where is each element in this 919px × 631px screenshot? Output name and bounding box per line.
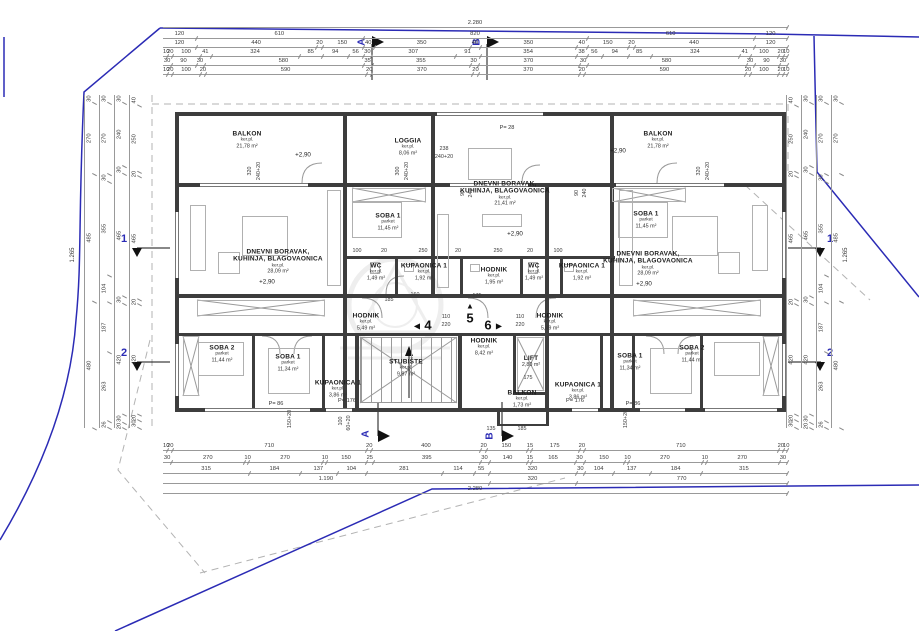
inner-dim: 110	[442, 314, 451, 320]
bed	[268, 348, 310, 394]
closet-row	[197, 300, 325, 316]
dim-value: 40	[576, 39, 587, 47]
dim-chain-left-1: 30270485480	[84, 95, 94, 428]
wardrobe	[763, 336, 779, 396]
level-marker: +2,90	[610, 148, 626, 155]
dim-value: 10	[783, 66, 787, 74]
dim-value: 580	[587, 57, 746, 65]
dim-value: 30	[85, 95, 94, 103]
dim-value: 324	[211, 48, 299, 56]
dim-value: 30	[817, 95, 826, 103]
dim-value: 350	[480, 39, 576, 47]
room-label-hodnik-right: HODNIKker.pl.5,49 m²	[537, 312, 564, 331]
inner-dim: 185	[518, 426, 527, 432]
dim-value: 140	[489, 454, 527, 462]
wall	[600, 333, 603, 412]
apartment-6-arrow: ▶	[496, 322, 502, 331]
dim-value: 137	[613, 465, 651, 473]
wall	[431, 112, 435, 298]
inner-dim: 220	[516, 322, 525, 328]
bed	[650, 348, 692, 394]
wardrobe	[612, 188, 686, 202]
kitchen-counter	[437, 214, 449, 288]
dim-value: 270	[248, 454, 321, 462]
dim-value: 270	[85, 103, 94, 174]
dim-chain-right-1: 4025020465204202030	[786, 95, 796, 428]
dim-value: 440	[196, 39, 316, 47]
kitchen-counter	[327, 190, 341, 286]
dim-value: 485	[832, 174, 841, 302]
sofa	[190, 205, 206, 271]
window	[437, 112, 543, 116]
parapet-label: P= 86	[269, 401, 284, 407]
dim-chain-bottom-1: 1020710204002015015175207102010	[163, 441, 787, 451]
window	[572, 408, 598, 412]
dim-value: 184	[249, 465, 299, 473]
wall	[513, 392, 547, 395]
dim-chain-left-2: 302703035510418726326	[99, 95, 109, 428]
dim-value: 20	[115, 423, 124, 428]
dim-value: 480	[832, 302, 841, 428]
dim-value: 90	[754, 57, 779, 65]
dim-value: 30	[817, 174, 826, 182]
inner-dim: 100	[338, 417, 344, 426]
dim-value: 26	[100, 421, 109, 428]
dim-value: 30	[100, 95, 109, 103]
inner-dim: 100	[554, 248, 563, 254]
wardrobe	[352, 188, 426, 202]
dim-value: 400	[371, 442, 480, 450]
dim-chain-right-3: 302703035510418726326	[816, 95, 826, 428]
dim-value: 240	[802, 103, 811, 166]
dim-value: 580	[204, 57, 363, 65]
dim-value: 94	[322, 48, 348, 56]
dim-value: 55	[474, 465, 489, 473]
dim-value: 150	[584, 454, 625, 462]
dim-value: 320	[489, 465, 577, 473]
inner-dim: 240+20	[435, 154, 453, 160]
dim-value: 465	[802, 174, 811, 296]
dim-value: 100	[750, 48, 777, 56]
dim-value: 120	[163, 30, 196, 38]
wall	[252, 333, 255, 412]
dim-value: 30	[163, 57, 171, 65]
parapet-label: P= 176	[566, 398, 584, 404]
dim-chain-bottom-4: 1.190320770	[163, 474, 787, 484]
dim-value: 281	[366, 465, 443, 473]
dim-value: 184	[650, 465, 700, 473]
inner-dim: 20	[381, 248, 387, 254]
inner-dim: 238	[440, 146, 449, 152]
inner-dim: 240+20	[404, 162, 410, 180]
dim-value: 30	[746, 57, 754, 65]
dim-value: 85	[628, 48, 651, 56]
dim-value: 324	[651, 48, 739, 56]
dim-value: 240	[115, 103, 124, 166]
dim-value: 350	[374, 39, 470, 47]
dim-value: 150	[322, 39, 363, 47]
dim-value: 150	[486, 442, 527, 450]
dim-value: 30	[163, 454, 171, 462]
dim-value: 590	[584, 66, 745, 74]
dim-value: 30	[363, 48, 371, 56]
sink	[470, 264, 480, 272]
dim-value: 610	[196, 30, 363, 38]
dim-value: 370	[478, 57, 579, 65]
sink	[564, 264, 574, 272]
dim-value: 485	[85, 174, 94, 302]
dim-chain-bottom-total: 2.280	[163, 484, 787, 494]
dim-value: 465	[130, 177, 139, 299]
dim-value: 41	[739, 48, 750, 56]
dim-value: 30	[470, 57, 478, 65]
dim-value: 104	[337, 465, 365, 473]
dim-value: 35	[363, 57, 373, 65]
level-marker: +2,90	[636, 281, 652, 288]
dim-value: 710	[172, 442, 366, 450]
dim-value: 30	[196, 57, 204, 65]
room-label-balkon-right: BALKONker.pl.21,78 m²	[643, 130, 672, 149]
dim-value: 465	[787, 177, 796, 299]
closet-row	[633, 300, 761, 316]
inner-dim: 20	[455, 248, 461, 254]
dim-value: 315	[163, 465, 249, 473]
dim-value: 590	[205, 66, 366, 74]
table	[218, 252, 240, 274]
wardrobe	[183, 336, 199, 396]
wall	[343, 256, 615, 259]
dim-value: 30	[480, 454, 488, 462]
dim-value: 30	[787, 420, 796, 428]
wall	[513, 333, 516, 395]
apartment-6-number: 6	[484, 318, 491, 333]
parapet-label: P= 28	[500, 125, 515, 131]
dim-chain-bottom-2: 3027010270101502539530140151653015010270…	[163, 453, 787, 463]
level-marker: +2,90	[507, 231, 523, 238]
dim-value: 104	[100, 275, 109, 302]
dim-value: 420	[115, 304, 124, 415]
window	[200, 183, 308, 187]
room-label-hodnik-small: HODNIKker.pl.1,95 m²	[481, 266, 508, 285]
dim-value: 420	[802, 304, 811, 415]
dim-value: 100	[750, 66, 777, 74]
dim-value: 307	[371, 48, 455, 56]
dim-value: 30	[130, 420, 139, 428]
dim-chain-right-4: 30270485480	[831, 95, 841, 428]
wall	[520, 256, 523, 297]
level-marker: +2,90	[295, 152, 311, 159]
dim-total-vertical-left: 1.265	[70, 247, 76, 262]
dim-value: 26	[817, 421, 826, 428]
inner-dim: 60+20	[346, 415, 352, 430]
dim-chain-top-total: 2.280	[163, 18, 787, 28]
dim-value: 320	[489, 475, 577, 483]
dim-value: 30	[115, 166, 124, 174]
inner-dim: 20	[527, 248, 533, 254]
dim-chain-bottom-3: 3151841371042811145532030104137184315	[163, 464, 787, 474]
wall	[460, 256, 463, 297]
dim-value: 465	[115, 174, 124, 296]
inner-dim: 135	[487, 426, 496, 432]
inner-dim: 90	[460, 190, 466, 196]
inner-dim: 240	[582, 189, 588, 198]
dim-value: 270	[171, 454, 244, 462]
dim-value: 94	[602, 48, 628, 56]
window	[640, 408, 685, 412]
inner-dim: 160	[411, 292, 420, 298]
dim-value: 120	[163, 39, 196, 47]
dim-value: 137	[300, 465, 338, 473]
dim-value: 270	[832, 103, 841, 174]
dim-chain-right-2: 3024030465304203020	[801, 95, 811, 428]
dim-value: 100	[172, 48, 199, 56]
dim-value: 270	[628, 454, 701, 462]
dim-value: 150	[326, 454, 367, 462]
inner-dim: 240+20	[256, 162, 262, 180]
dim-value: 355	[817, 182, 826, 275]
floor-plan: BALKONker.pl.21,78 m² LOGGIAker.pl.8,06 …	[0, 0, 919, 631]
dim-value: 30	[802, 95, 811, 103]
dim-value: 420	[130, 304, 139, 415]
dim-value: 104	[817, 275, 826, 302]
inner-dim: 175	[473, 293, 482, 299]
room-label-hodnik-center: HODNIKker.pl.8,42 m²	[471, 337, 498, 356]
bed	[714, 342, 760, 376]
sofa	[482, 214, 522, 227]
dim-value: 120	[754, 30, 787, 38]
dim-value: 41	[200, 48, 211, 56]
level-marker: +2,90	[259, 279, 275, 286]
table	[718, 252, 740, 274]
dim-value: 187	[100, 303, 109, 352]
bed	[352, 202, 402, 238]
dim-value: 20	[787, 171, 796, 176]
inner-dim: 110	[516, 314, 525, 320]
dim-value: 820	[363, 30, 587, 38]
dim-value: 263	[817, 352, 826, 421]
dim-value: 610	[587, 30, 754, 38]
dim-value: 770	[576, 475, 787, 483]
dim-value: 710	[584, 442, 778, 450]
dim-value: 91	[455, 48, 480, 56]
window	[175, 212, 179, 278]
dim-value: 30	[115, 95, 124, 103]
room-label-hodnik-left: HODNIKker.pl.5,49 m²	[353, 312, 380, 331]
dim-value: 40	[130, 95, 139, 106]
dim-value: 30	[579, 57, 587, 65]
dim-chain-top-5: 102010020590203702037020590201002010	[163, 65, 787, 75]
dim-value: 30	[779, 57, 787, 65]
dim-value: 250	[130, 106, 139, 172]
dim-value: 56	[587, 48, 602, 56]
elevator-cab	[517, 337, 544, 391]
dim-value: 56	[348, 48, 363, 56]
dim-value: 114	[442, 465, 473, 473]
dim-value: 20	[802, 423, 811, 428]
bed	[198, 342, 244, 376]
dim-chain-left-3: 3024030465304203020	[114, 95, 124, 428]
dim-value: 355	[372, 57, 469, 65]
inner-dim: 175	[524, 375, 533, 381]
wall	[700, 333, 703, 412]
dim-value: 90	[171, 57, 196, 65]
room-label-balkon-left: BALKONker.pl.21,78 m²	[232, 130, 261, 149]
dim-total-vertical-right: 1.265	[843, 247, 849, 262]
toilet	[370, 262, 380, 274]
dim-value: 370	[371, 66, 472, 74]
dim-value: 30	[779, 454, 787, 462]
window	[450, 183, 528, 187]
dim-value: 270	[100, 103, 109, 174]
dim-value: 10	[783, 48, 787, 56]
dim-value: 30	[832, 95, 841, 103]
bed	[618, 202, 668, 238]
dim-value: 30	[575, 454, 583, 462]
dim-value: 150	[587, 39, 628, 47]
inner-dim: 240+20	[705, 162, 711, 180]
wall	[395, 256, 398, 297]
wall	[175, 333, 786, 336]
inner-dim: 320	[696, 167, 702, 176]
window	[705, 408, 777, 412]
dim-value: 2.280	[163, 19, 787, 27]
dim-value: 440	[634, 39, 754, 47]
inner-dim: 320	[247, 167, 253, 176]
dim-value: 120	[754, 39, 787, 47]
parapet-label: P= 176	[338, 398, 356, 404]
sink	[404, 264, 414, 272]
dim-value: 85	[299, 48, 322, 56]
dim-value: 315	[701, 465, 787, 473]
dim-value: 354	[480, 48, 576, 56]
wall	[560, 256, 563, 297]
dim-value: 30	[802, 166, 811, 174]
window	[616, 183, 724, 187]
dim-value: 355	[100, 182, 109, 275]
inner-dim: 150+20	[287, 410, 293, 428]
dim-value: 1.190	[163, 475, 489, 483]
wall	[610, 112, 614, 412]
wall	[343, 112, 347, 412]
dim-value: 370	[478, 66, 579, 74]
dim-value: 100	[172, 66, 199, 74]
dim-value: 263	[100, 352, 109, 421]
apartment-5-number: 5	[466, 311, 473, 326]
window	[326, 408, 352, 412]
dim-value: 187	[817, 303, 826, 352]
room-label-loggia: LOGGIAker.pl.8,06 m²	[395, 137, 422, 156]
dim-value: 38	[576, 48, 586, 56]
dining-table	[468, 148, 512, 180]
dim-value: 480	[85, 302, 94, 428]
apartment-4-number: 4	[424, 318, 431, 333]
dim-value: 40	[363, 39, 374, 47]
dim-value: 270	[706, 454, 779, 462]
dim-chain-left-4: 4025020465204202030	[129, 95, 139, 428]
wall	[322, 333, 325, 412]
section-letter-B-bottom: B	[485, 432, 496, 439]
apartment-4-arrow: ◀	[414, 322, 420, 331]
dim-value: 30	[576, 465, 584, 473]
inner-dim: 250	[419, 248, 428, 254]
inner-dim: 150+20	[623, 410, 629, 428]
dim-value: 270	[817, 103, 826, 174]
inner-dim: 300	[395, 167, 401, 176]
dim-value: 30	[100, 174, 109, 182]
inner-dim: 240	[468, 189, 474, 198]
parapet-label: P= 86	[626, 401, 641, 407]
dining-table	[672, 216, 718, 256]
dim-value: 20	[130, 171, 139, 176]
sofa	[752, 205, 768, 271]
window	[175, 344, 179, 396]
inner-dim: 250	[494, 248, 503, 254]
apartment-5-arrow: ▲	[466, 302, 474, 311]
dim-value: 10	[783, 442, 787, 450]
dim-value: 40	[787, 95, 796, 106]
dim-value: 25	[366, 454, 373, 462]
dim-value: 2.280	[163, 485, 787, 493]
inner-dim: 185	[385, 297, 394, 303]
inner-dim: 220	[442, 322, 451, 328]
dining-table	[242, 216, 288, 256]
dim-value: 104	[584, 465, 612, 473]
wall	[458, 333, 462, 412]
dim-value: 40	[470, 39, 481, 47]
room-label-soba1-bottom-right: SOBA 1parket11,34 m²	[617, 352, 642, 371]
dim-value: 395	[373, 454, 480, 462]
dim-value: 165	[531, 454, 576, 462]
dim-value: 420	[787, 304, 796, 415]
dim-value: 250	[787, 106, 796, 172]
section-letter-A-bottom: A	[361, 430, 372, 437]
toilet	[528, 262, 538, 274]
staircase	[360, 337, 457, 403]
inner-dim: 90	[574, 190, 580, 196]
inner-dim: 100	[353, 248, 362, 254]
dim-value: 175	[531, 442, 579, 450]
